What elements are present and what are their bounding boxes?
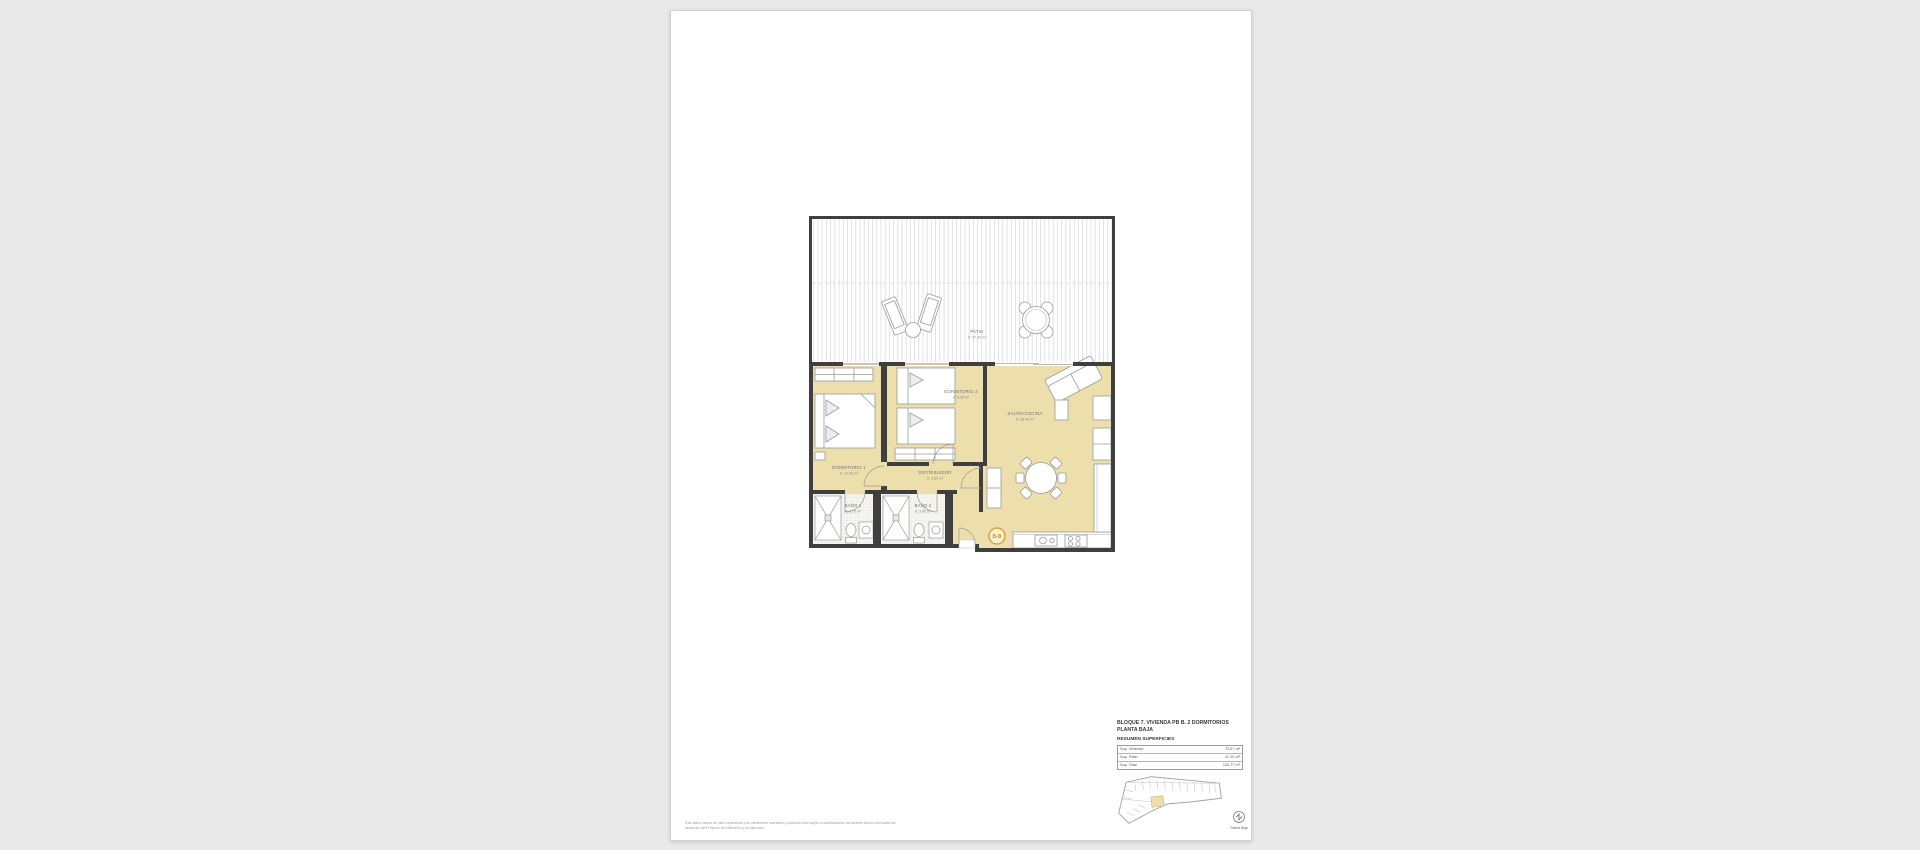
key-plan-highlight	[1151, 796, 1164, 807]
table-row: Sup. Total 120,77 m²	[1118, 761, 1242, 769]
patio-table-icon	[1019, 302, 1053, 338]
room-label-patio: PATIO	[970, 329, 984, 334]
room-area-dorm1: S: 11,95 m²	[840, 472, 859, 476]
key-plan	[1114, 770, 1226, 832]
room-label-dorm1: DORMITORIO 1	[832, 465, 866, 470]
surface-table: Sup. Vivienda 73,57 m² Sup. Patio 47,20 …	[1117, 745, 1243, 770]
table-row-label: Sup. Vivienda	[1120, 746, 1143, 753]
floor-plan: B-B PATIO S: 47,20 m² DORMITORIO 1 S: 11…	[809, 216, 1115, 552]
table-row-value: 73,57 m²	[1225, 746, 1240, 753]
section-marker-label: B-B	[993, 534, 1002, 540]
desktop-background: B-B PATIO S: 47,20 m² DORMITORIO 1 S: 11…	[0, 0, 1920, 850]
north-arrow-icon	[1232, 810, 1246, 824]
table-row: Sup. Vivienda 73,57 m²	[1118, 746, 1242, 753]
room-area-bano2: S: 3,45 m²	[915, 510, 932, 514]
titleblock-title-line2: PLANTA BAJA	[1117, 727, 1251, 733]
room-label-dorm2: DORMITORIO 2	[944, 389, 978, 394]
section-marker: B-B	[989, 528, 1005, 544]
keyplan-caption: Planta Baja	[1219, 826, 1259, 830]
room-label-salon: SALÓN-COCINA	[1008, 411, 1043, 416]
titleblock-subtitle: RESUMEN SUPERFICIES	[1117, 737, 1174, 742]
room-label-bano1: BAÑO 1	[845, 503, 862, 508]
room-area-distribuidor: S: 2,80 m²	[927, 477, 944, 481]
table-row-label: Sup. Total	[1120, 762, 1137, 769]
table-row-label: Sup. Patio	[1120, 754, 1138, 761]
disclaimer-line2: desarrollo del Proyecto de Edificación y…	[685, 826, 985, 831]
wardrobe-icon	[815, 368, 873, 381]
disclaimer-text: Este plano carece de valor contractual y…	[685, 821, 985, 831]
plan-sheet: B-B PATIO S: 47,20 m² DORMITORIO 1 S: 11…	[670, 10, 1252, 841]
room-label-distribuidor: DISTRIBUIDOR	[918, 470, 951, 475]
room-area-salon: S: 28,40 m²	[1016, 418, 1035, 422]
dining-table-icon	[1016, 457, 1066, 500]
room-area-bano1: S: 3,75 m²	[845, 510, 862, 514]
room-label-bano2: BAÑO 2	[915, 503, 932, 508]
room-area-dorm2: S: 9,35 m²	[953, 396, 970, 400]
patio-area	[812, 219, 1112, 362]
table-row-value: 120,77 m²	[1223, 762, 1240, 769]
table-row-value: 47,20 m²	[1225, 754, 1240, 761]
titleblock-title-line1: BLOQUE 7. VIVIENDA PB B. 2 DORMITORIOS	[1117, 720, 1251, 726]
room-area-patio: S: 47,20 m²	[968, 336, 987, 340]
table-row: Sup. Patio 47,20 m²	[1118, 753, 1242, 761]
